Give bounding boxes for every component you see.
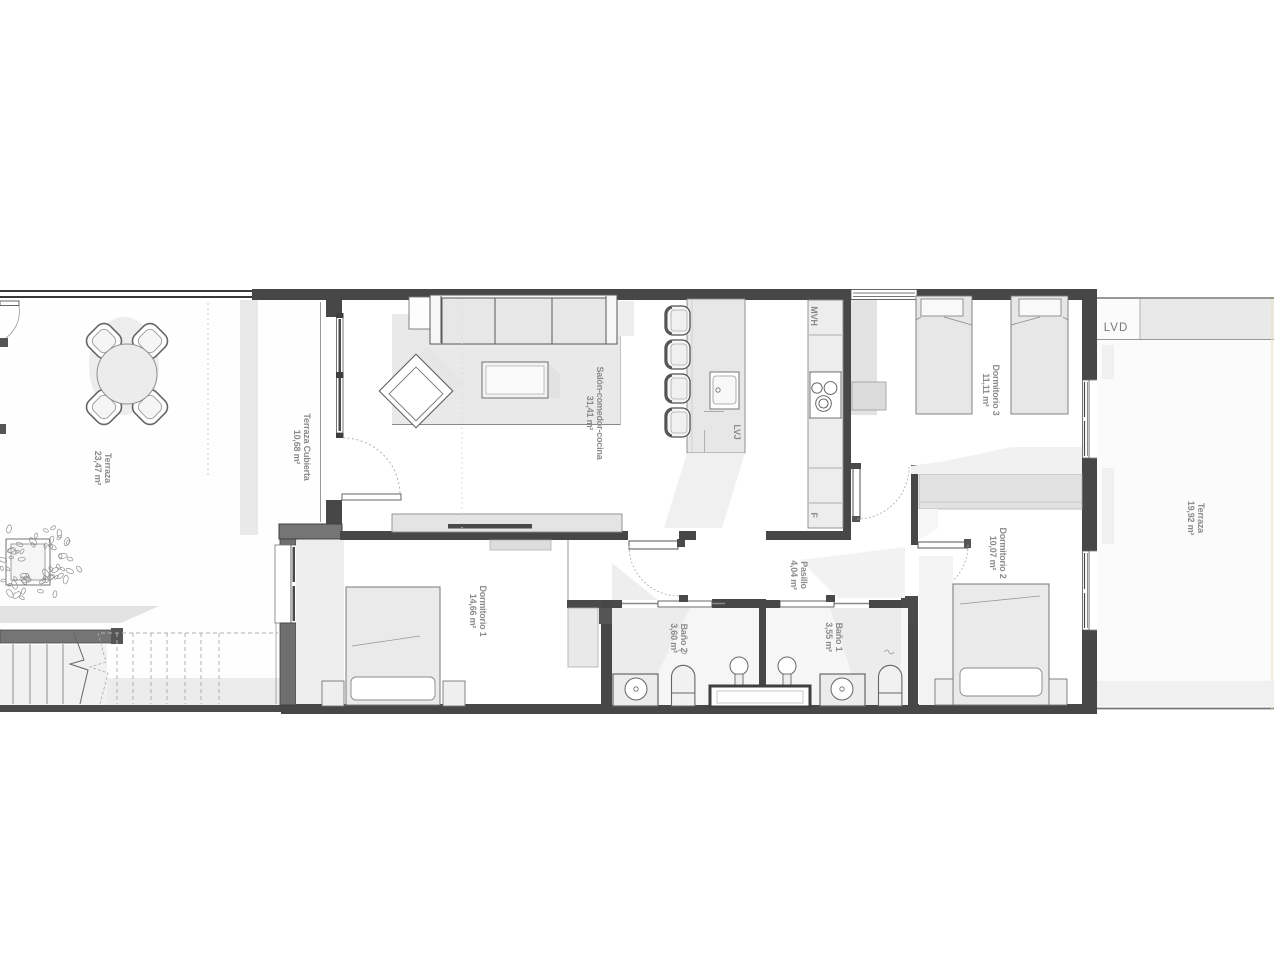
svg-text:Terraza19,92 m²: Terraza19,92 m²	[1186, 501, 1206, 536]
svg-text:F: F	[809, 512, 819, 518]
svg-text:Terraza23,47 m²: Terraza23,47 m²	[93, 451, 113, 486]
svg-text:LVD: LVD	[1104, 322, 1129, 334]
svg-text:Baño 13,55 m²: Baño 13,55 m²	[824, 622, 844, 652]
svg-text:Pasillo4,04 m²: Pasillo4,04 m²	[789, 560, 809, 590]
svg-text:LVJ: LVJ	[732, 424, 742, 439]
svg-text:MVH: MVH	[809, 306, 819, 325]
svg-text:Baño 23,60 m²: Baño 23,60 m²	[669, 623, 689, 653]
